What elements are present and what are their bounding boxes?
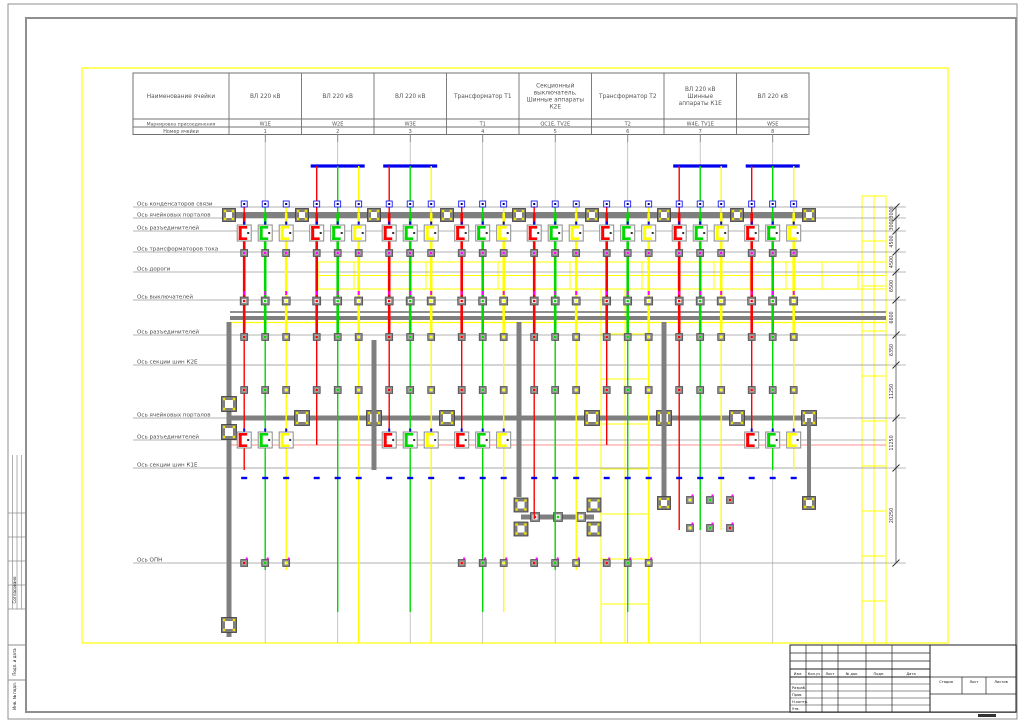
apparatus-dot: [689, 527, 691, 529]
breaker-drive-mark: [409, 291, 411, 295]
apparatus-dot: [648, 389, 650, 391]
opn-magenta-mark: [463, 558, 465, 560]
apparatus-dot: [627, 336, 629, 338]
tower-footing-core: [733, 414, 741, 422]
disconnector-contact: [384, 226, 393, 229]
dimension-value-2: 4500: [889, 235, 895, 247]
disconnector-contact: [767, 444, 776, 447]
footing-anchor-mark: [233, 398, 235, 400]
footing-anchor-mark: [296, 412, 298, 414]
disconnector-drive: [461, 222, 463, 225]
disconnector-contact: [239, 237, 248, 240]
disconnector-contact: [550, 226, 559, 229]
disconnector-drive: [430, 222, 432, 225]
apparatus-dot: [316, 389, 318, 391]
disconnector-contact: [477, 444, 486, 447]
footing-anchor-mark: [732, 218, 734, 220]
capacitor-dot: [533, 203, 535, 205]
disconnector-drive: [243, 429, 245, 432]
apparatus-dot: [575, 300, 577, 302]
disconnector-contact: [601, 226, 610, 229]
disconnector-dot: [289, 439, 291, 441]
bus-support-mark: [604, 477, 610, 479]
disconnector-dot: [797, 439, 799, 441]
breaker-drive-mark: [482, 291, 484, 295]
bus-support-mark: [386, 477, 392, 479]
disconnector-contact: [643, 226, 652, 229]
footing-anchor-mark: [233, 629, 235, 631]
disconnector-contact: [405, 237, 414, 240]
footing-anchor-mark: [296, 422, 298, 424]
apparatus-dot: [751, 336, 753, 338]
footing-anchor-mark: [451, 422, 453, 424]
footing-anchor-mark: [812, 218, 814, 220]
apparatus-dot: [482, 562, 484, 564]
apparatus-dot: [388, 252, 390, 254]
apparatus-dot: [264, 336, 266, 338]
opn-magenta-mark: [288, 558, 290, 560]
disconnector-contact: [456, 444, 465, 447]
opn-magenta-mark: [578, 558, 580, 560]
table-header-number: Номер ячейки: [163, 128, 199, 135]
disconnector-contact: [498, 433, 507, 436]
disconnector-contact: [767, 433, 776, 436]
apparatus-dot: [388, 336, 390, 338]
apparatus-dot: [243, 252, 245, 254]
bus-support-mark: [791, 477, 797, 479]
footing-anchor-mark: [659, 210, 661, 212]
bay-name-7: ВЛ 220 кВ: [685, 87, 716, 93]
disconnector-contact: [746, 237, 755, 240]
bay-name-4: Трансформатор Т1: [453, 94, 512, 100]
apparatus-dot: [285, 336, 287, 338]
apparatus-dot: [772, 252, 774, 254]
breaker-drive-mark: [264, 291, 266, 295]
apparatus-dot: [729, 499, 731, 501]
disconnector-dot: [341, 232, 343, 234]
apparatus-dot: [388, 300, 390, 302]
bay-marking-2: W2E: [332, 122, 343, 128]
apparatus-dot: [503, 336, 505, 338]
axis-label-1: Ось ячейковых порталов: [137, 212, 211, 219]
disconnector-contact: [674, 237, 683, 240]
apparatus-dot: [316, 252, 318, 254]
footing-anchor-mark: [588, 523, 590, 525]
footing-anchor-mark: [659, 498, 661, 500]
capacitor-dot: [409, 203, 411, 205]
capacitor-dot: [627, 203, 629, 205]
disconnector-dot: [486, 439, 488, 441]
disconnector-drive: [409, 429, 411, 432]
apparatus-dot: [554, 336, 556, 338]
disconnector-contact: [332, 226, 341, 229]
breaker-drive-mark: [772, 291, 774, 295]
apparatus-dot: [648, 562, 650, 564]
bay-name-6: Трансформатор Т2: [598, 94, 657, 100]
footing-anchor-mark: [813, 422, 815, 424]
apparatus-dot: [264, 562, 266, 564]
disconnector-dot: [755, 439, 757, 441]
disconnector-contact: [695, 237, 704, 240]
dimension-value-8: 11250: [889, 435, 895, 450]
bay-number-1: 1: [264, 129, 267, 135]
breaker-drive-mark: [285, 291, 287, 295]
apparatus-dot: [388, 389, 390, 391]
footing-anchor-mark: [741, 422, 743, 424]
apparatus-dot: [678, 252, 680, 254]
title-row-label-3: Утв.: [792, 707, 800, 711]
footing-anchor-mark: [595, 218, 597, 220]
disconnector-dot: [247, 439, 249, 441]
bay-number-3: 3: [409, 129, 412, 135]
apparatus-dot: [482, 300, 484, 302]
footing-anchor-mark: [233, 408, 235, 410]
disconnector-contact: [426, 444, 435, 447]
footing-anchor-mark: [368, 422, 370, 424]
bay-number-4: 4: [481, 129, 484, 135]
stage-label-1: Лист: [969, 680, 978, 684]
apparatus-dot: [720, 252, 722, 254]
disconnector-contact: [239, 444, 248, 447]
disconnector-drive: [554, 222, 556, 225]
tower-footing-core: [298, 414, 306, 422]
disconnector-contact: [260, 226, 269, 229]
apparatus-dot: [709, 499, 711, 501]
apparatus-dot: [580, 516, 582, 518]
disconnector-contact: [384, 237, 393, 240]
apparatus-dot: [627, 252, 629, 254]
disconnector-contact: [695, 226, 704, 229]
apparatus-dot: [575, 389, 577, 391]
footing-anchor-mark: [223, 398, 225, 400]
footing-anchor-mark: [378, 422, 380, 424]
tower-footing-core: [299, 212, 305, 218]
footing-anchor-mark: [524, 523, 526, 525]
footing-anchor-mark: [667, 218, 669, 220]
footing-anchor-mark: [587, 210, 589, 212]
apparatus-dot: [461, 562, 463, 564]
apparatus-dot: [689, 499, 691, 501]
tower-footing-core: [661, 500, 667, 506]
tower-footing-core: [589, 212, 595, 218]
apparatus-dot: [285, 562, 287, 564]
apparatus-dot: [533, 336, 535, 338]
footing-anchor-mark: [667, 498, 669, 500]
disconnector-contact: [674, 226, 683, 229]
apparatus-dot: [554, 562, 556, 564]
disconnector-drive: [388, 429, 390, 432]
bus-support-mark: [459, 477, 465, 479]
capacitor-dot: [503, 203, 505, 205]
apparatus-dot: [772, 300, 774, 302]
footing-anchor-mark: [233, 436, 235, 438]
capacitor-dot: [606, 203, 608, 205]
disconnector-drive: [482, 429, 484, 432]
bus-support-mark: [407, 477, 413, 479]
capacitor-dot: [430, 203, 432, 205]
apparatus-dot: [337, 336, 339, 338]
tower-footing-core: [806, 212, 812, 218]
opn-magenta-mark: [267, 558, 269, 560]
tower-footing-core: [226, 212, 232, 218]
footing-anchor-mark: [378, 412, 380, 414]
disconnector-contact: [477, 237, 486, 240]
dimension-value-5: 6600: [889, 311, 895, 323]
footing-anchor-mark: [597, 499, 599, 501]
disconnector-dot: [507, 439, 509, 441]
disconnector-contact: [767, 237, 776, 240]
disconnector-dot: [610, 232, 612, 234]
apparatus-dot: [358, 336, 360, 338]
disconnector-drive: [627, 222, 629, 225]
stage-label-2: Листов: [994, 680, 1007, 684]
format-note-smudge: [978, 714, 996, 717]
footing-anchor-mark: [804, 218, 806, 220]
apparatus-dot: [720, 300, 722, 302]
footing-anchor-mark: [441, 422, 443, 424]
apparatus-dot: [648, 300, 650, 302]
footing-anchor-mark: [224, 210, 226, 212]
bus-support-mark: [718, 477, 724, 479]
disconnector-contact: [498, 226, 507, 229]
disconnector-dot: [724, 232, 726, 234]
apparatus-dot: [337, 389, 339, 391]
bay-marking-4: Т1: [479, 122, 486, 128]
footing-anchor-mark: [667, 506, 669, 508]
breaker-drive-mark: [461, 291, 463, 295]
disconnector-dot: [652, 232, 654, 234]
dimension-value-6: 6350: [889, 344, 895, 356]
disconnector-drive: [678, 222, 680, 225]
apparatus-dot: [793, 300, 795, 302]
capacitor-dot: [461, 203, 463, 205]
disconnector-dot: [776, 232, 778, 234]
footing-anchor-mark: [740, 210, 742, 212]
axis-label-2: Ось разъединителей: [137, 225, 199, 232]
disconnector-contact: [260, 433, 269, 436]
axis-label-11: Ось ОПН: [137, 558, 162, 564]
bay-name-5: Секционный: [536, 83, 575, 90]
apparatus-dot: [533, 562, 535, 564]
footing-anchor-mark: [522, 210, 524, 212]
aux-magenta-mark: [712, 495, 714, 497]
bay-number-5: 5: [554, 129, 557, 135]
disconnector-drive: [285, 222, 287, 225]
tower-footing-core: [371, 212, 377, 218]
footing-anchor-mark: [731, 422, 733, 424]
dimension-value-9: 20250: [889, 508, 895, 523]
apparatus-dot: [461, 252, 463, 254]
axis-label-3: Ось трансформаторов тока: [137, 247, 218, 253]
dimension-value-0: 3000: [889, 206, 895, 218]
bay-marking-5: QC1E, TV2E: [540, 122, 570, 128]
disconnector-drive: [751, 429, 753, 432]
disconnector-contact: [281, 237, 290, 240]
footing-anchor-mark: [306, 412, 308, 414]
disconnector-contact: [716, 226, 725, 229]
apparatus-dot: [503, 300, 505, 302]
disconnector-dot: [392, 232, 394, 234]
axis-label-9: Ось разъединителей: [137, 434, 199, 441]
strip-label-0: Согласовано: [12, 576, 17, 603]
apparatus-dot: [751, 252, 753, 254]
bus-support-mark: [335, 477, 341, 479]
apparatus-dot: [720, 336, 722, 338]
apparatus-dot: [243, 562, 245, 564]
footing-anchor-mark: [515, 499, 517, 501]
apparatus-dot: [461, 389, 463, 391]
bay-name-8: ВЛ 220 кВ: [757, 94, 788, 100]
apparatus-dot: [533, 300, 535, 302]
bus-support-mark: [770, 477, 776, 479]
footing-anchor-mark: [804, 498, 806, 500]
bay-name-5: Шинные аппараты: [527, 98, 585, 104]
axis-label-4: Ось дороги: [137, 267, 171, 273]
apparatus-dot: [606, 252, 608, 254]
disconnector-contact: [550, 237, 559, 240]
apparatus-dot: [430, 252, 432, 254]
footing-anchor-mark: [524, 508, 526, 510]
footing-anchor-mark: [297, 218, 299, 220]
breaker-drive-mark: [243, 291, 245, 295]
footing-anchor-mark: [515, 532, 517, 534]
capacitor-dot: [751, 203, 753, 205]
disconnector-dot: [507, 232, 509, 234]
substation-plan-drawing: СогласованоПодп. и датаИнв. № подл.Ось к…: [0, 0, 1024, 723]
footing-anchor-mark: [306, 422, 308, 424]
footing-anchor-mark: [659, 506, 661, 508]
bus-support-mark: [356, 477, 362, 479]
stage-label-0: Стадия: [939, 680, 953, 684]
footing-anchor-mark: [515, 508, 517, 510]
capacitor-dot: [285, 203, 287, 205]
footing-anchor-mark: [803, 422, 805, 424]
footing-anchor-mark: [587, 218, 589, 220]
apparatus-dot: [720, 389, 722, 391]
disconnector-drive: [793, 429, 795, 432]
apparatus-dot: [243, 389, 245, 391]
tower-footing-core: [443, 414, 451, 422]
apparatus-dot: [751, 300, 753, 302]
footing-anchor-mark: [658, 422, 660, 424]
disconnector-drive: [720, 222, 722, 225]
breaker-drive-mark: [554, 291, 556, 295]
title-row-label-1: Пров.: [792, 693, 802, 697]
apparatus-dot: [627, 389, 629, 391]
disconnector-contact: [456, 226, 465, 229]
disconnector-dot: [558, 232, 560, 234]
apparatus-dot: [337, 300, 339, 302]
disconnector-drive: [648, 222, 650, 225]
disconnector-drive: [793, 222, 795, 225]
bay-name-2: ВЛ 220 кВ: [322, 94, 353, 100]
disconnector-dot: [247, 232, 249, 234]
bay-name-7: аппараты К1Е: [679, 101, 723, 107]
table-header-marking: Маркировка присоединения: [147, 122, 216, 128]
disconnector-contact: [767, 226, 776, 229]
disconnector-contact: [384, 444, 393, 447]
disconnector-contact: [788, 444, 797, 447]
disconnector-contact: [456, 237, 465, 240]
footing-anchor-mark: [441, 412, 443, 414]
bus-support-mark: [501, 477, 507, 479]
disconnector-contact: [788, 433, 797, 436]
disconnector-contact: [571, 226, 580, 229]
axis-label-5: Ось выключателей: [137, 294, 193, 301]
bus-support-mark: [625, 477, 631, 479]
apparatus-dot: [316, 336, 318, 338]
breaker-drive-mark: [388, 291, 390, 295]
dimension-value-4: 6500: [889, 280, 895, 292]
disconnector-drive: [243, 222, 245, 225]
tower-footing-core: [591, 502, 598, 509]
disconnector-contact: [746, 226, 755, 229]
opn-magenta-mark: [608, 558, 610, 560]
bus-support-mark: [573, 477, 579, 479]
footing-anchor-mark: [740, 218, 742, 220]
apparatus-dot: [461, 336, 463, 338]
disconnector-contact: [353, 226, 362, 229]
footing-anchor-mark: [232, 210, 234, 212]
capacitor-dot: [648, 203, 650, 205]
bus-support-mark: [646, 477, 652, 479]
disconnector-drive: [772, 222, 774, 225]
tower-footing-core: [734, 212, 740, 218]
strip-label-1: Подп. и дата: [12, 648, 17, 676]
footing-anchor-mark: [731, 412, 733, 414]
footing-anchor-mark: [667, 210, 669, 212]
footing-anchor-mark: [223, 426, 225, 428]
disconnector-dot: [413, 232, 415, 234]
apparatus-dot: [285, 389, 287, 391]
apparatus-dot: [554, 389, 556, 391]
disconnector-dot: [320, 232, 322, 234]
footing-anchor-mark: [668, 412, 670, 414]
capacitor-dot: [243, 203, 245, 205]
apparatus-dot: [430, 336, 432, 338]
footing-anchor-mark: [586, 412, 588, 414]
axis-label-10: Ось секции шин К1Е: [137, 463, 198, 469]
apparatus-dot: [699, 389, 701, 391]
tower-footing-core: [518, 502, 525, 509]
dimension-value-7: 11250: [889, 384, 895, 399]
disconnector-drive: [264, 429, 266, 432]
breaker-drive-mark: [430, 291, 432, 295]
title-col-label-1: Кол.уч: [808, 672, 820, 676]
footing-anchor-mark: [377, 218, 379, 220]
bay-marking-6: Т2: [624, 122, 631, 128]
opn-magenta-mark: [246, 558, 248, 560]
footing-anchor-mark: [597, 523, 599, 525]
apparatus-dot: [316, 300, 318, 302]
bus-support-mark: [676, 477, 682, 479]
disconnector-dot: [268, 439, 270, 441]
opn-magenta-mark: [650, 558, 652, 560]
apparatus-dot: [409, 336, 411, 338]
disconnector-drive: [606, 222, 608, 225]
footing-anchor-mark: [368, 412, 370, 414]
disconnector-contact: [239, 226, 248, 229]
title-col-label-3: № док.: [846, 672, 859, 676]
disconnector-drive: [285, 429, 287, 432]
apparatus-dot: [243, 300, 245, 302]
footing-anchor-mark: [224, 218, 226, 220]
apparatus-dot: [699, 336, 701, 338]
disconnector-dot: [268, 232, 270, 234]
footing-anchor-mark: [588, 499, 590, 501]
bay-number-8: 8: [771, 129, 774, 135]
footing-anchor-mark: [377, 210, 379, 212]
